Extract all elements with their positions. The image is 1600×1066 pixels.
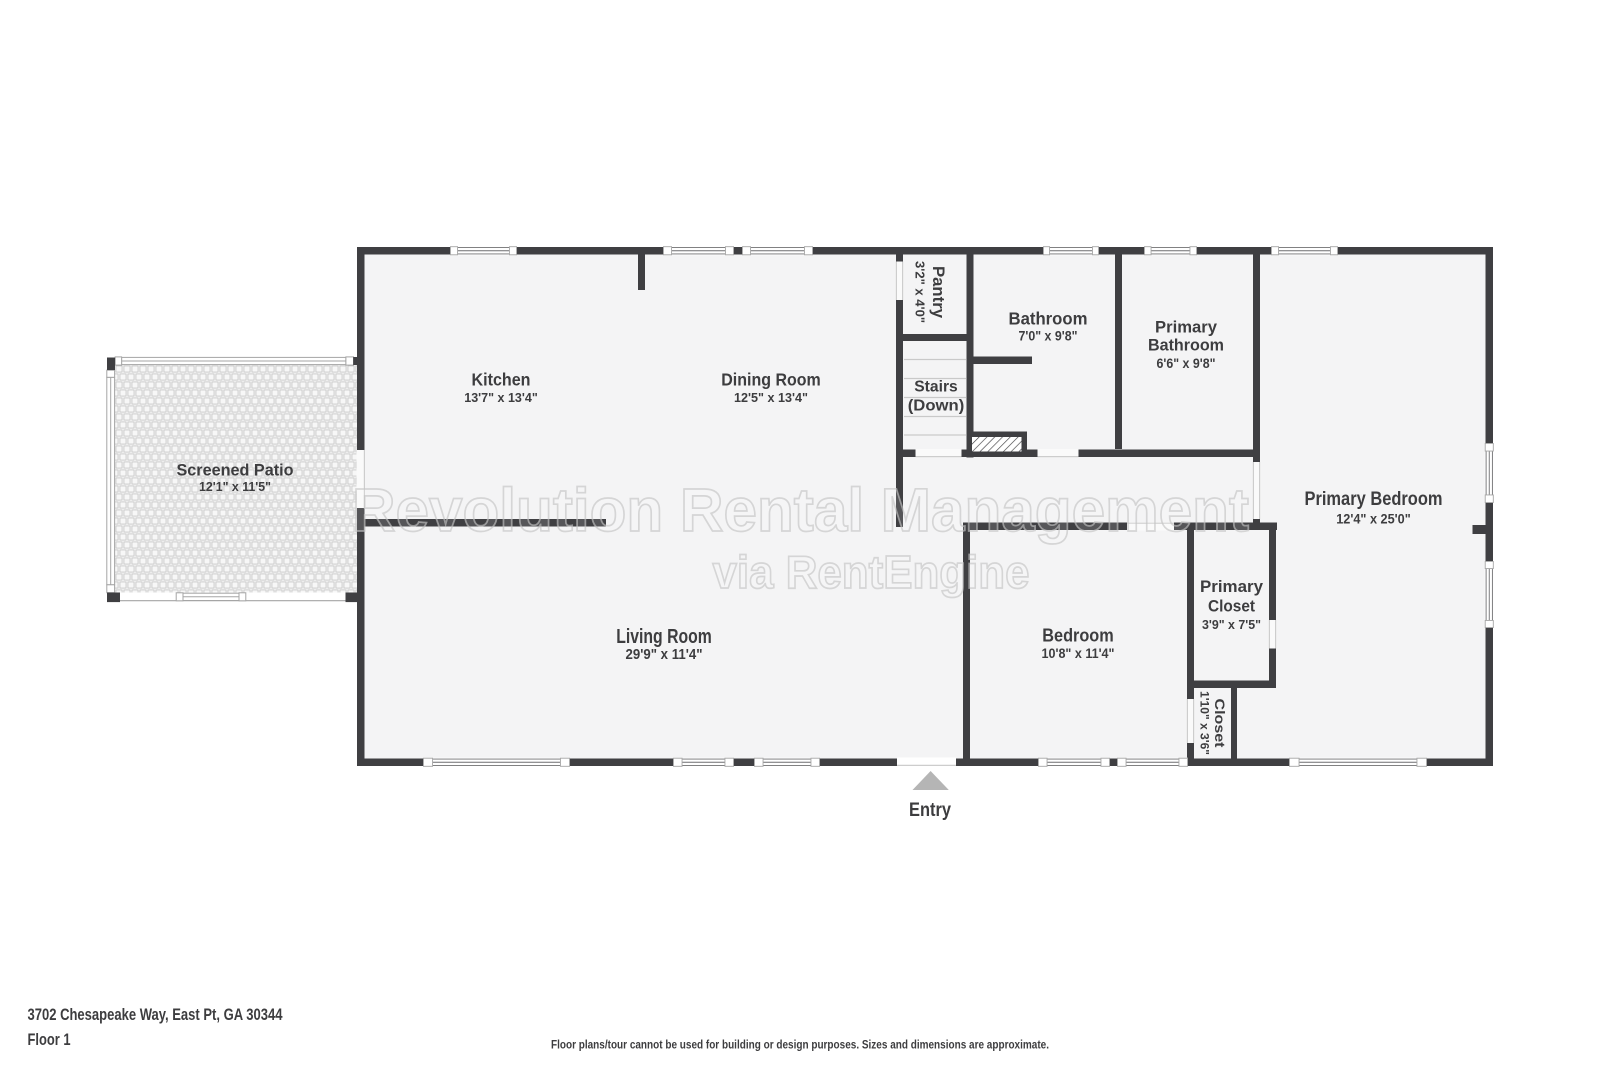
svg-text:Screened Patio: Screened Patio [177,461,294,480]
svg-text:12'4" x 25'0": 12'4" x 25'0" [1336,511,1411,527]
svg-text:1'10" x 3'6": 1'10" x 3'6" [1198,691,1212,755]
svg-text:Pantry: Pantry [929,266,947,319]
svg-text:Primary Bedroom: Primary Bedroom [1305,488,1443,510]
svg-text:Primary: Primary [1200,578,1264,596]
svg-text:Kitchen: Kitchen [472,370,531,390]
svg-text:via RentEngine: via RentEngine [713,546,1030,598]
svg-text:Stairs: Stairs [914,379,958,396]
svg-text:29'9" x 11'4": 29'9" x 11'4" [626,647,703,663]
svg-text:Revolution Rental Management: Revolution Rental Management [352,476,1249,544]
svg-text:Bathroom: Bathroom [1148,336,1224,355]
svg-text:Floor 1: Floor 1 [28,1031,71,1049]
svg-text:10'8" x 11'4": 10'8" x 11'4" [1042,646,1115,661]
svg-text:Primary: Primary [1155,317,1218,336]
svg-text:Closet: Closet [1208,598,1255,616]
svg-text:3702 Chesapeake Way, East Pt,: 3702 Chesapeake Way, East Pt, GA 30344 [28,1005,283,1024]
svg-text:3'9" x 7'5": 3'9" x 7'5" [1202,617,1261,632]
svg-text:Bedroom: Bedroom [1042,626,1114,646]
svg-text:12'1" x 11'5": 12'1" x 11'5" [199,479,271,494]
svg-text:6'6" x 9'8": 6'6" x 9'8" [1157,356,1216,371]
svg-text:Bathroom: Bathroom [1009,309,1088,329]
svg-text:Floor plans/tour cannot be use: Floor plans/tour cannot be used for buil… [551,1038,1049,1052]
svg-text:13'7" x 13'4": 13'7" x 13'4" [464,390,538,405]
svg-text:Dining Room: Dining Room [721,370,821,390]
svg-text:7'0" x 9'8": 7'0" x 9'8" [1019,329,1078,344]
svg-text:Entry: Entry [909,800,951,821]
svg-text:Living Room: Living Room [616,626,712,648]
svg-text:12'5" x 13'4": 12'5" x 13'4" [734,390,808,405]
svg-text:(Down): (Down) [908,397,965,414]
svg-text:Closet: Closet [1212,699,1228,748]
svg-text:3'2" x 4'0": 3'2" x 4'0" [913,261,928,323]
